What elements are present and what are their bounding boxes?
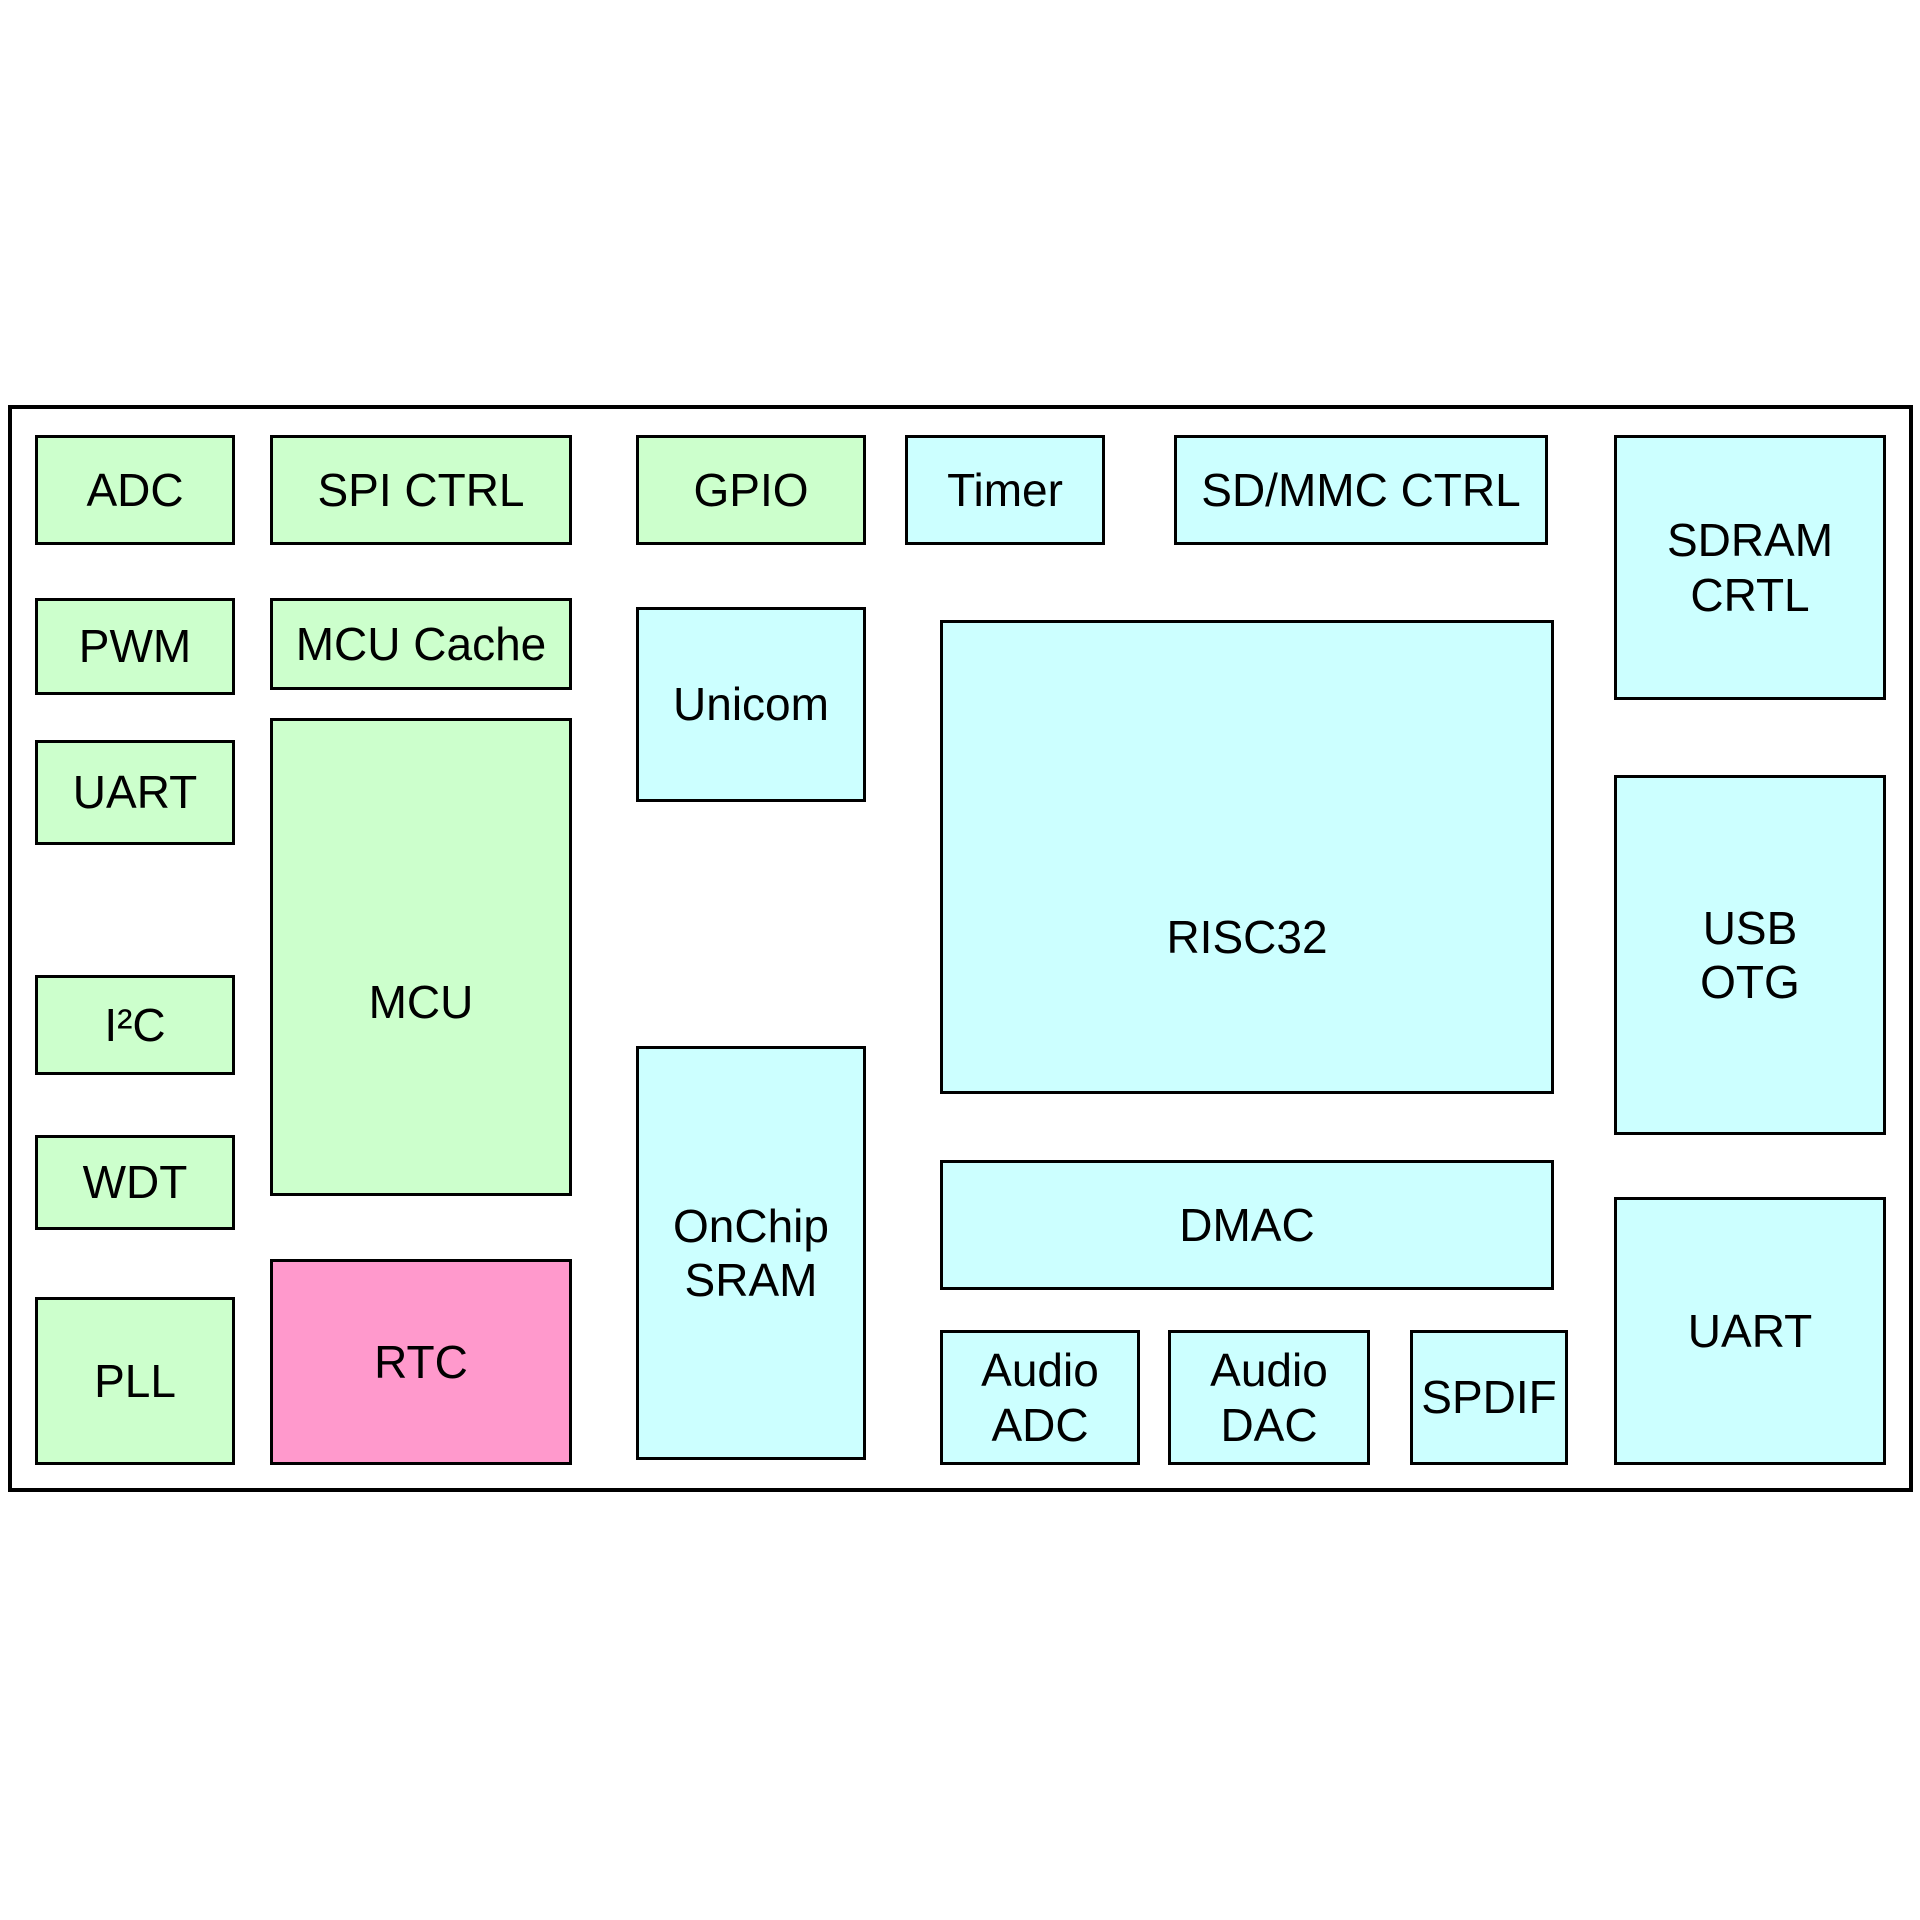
block-spdif: SPDIF <box>1410 1330 1568 1465</box>
block-label: GPIO <box>693 463 808 517</box>
block-pwm: PWM <box>35 598 235 695</box>
block-label: Unicom <box>673 677 829 731</box>
block-label: OnChip SRAM <box>673 1199 829 1308</box>
block-uart-right: UART <box>1614 1197 1886 1465</box>
block-timer: Timer <box>905 435 1105 545</box>
block-label: I²C <box>104 998 165 1052</box>
block-rtc: RTC <box>270 1259 572 1465</box>
block-label: SPDIF <box>1421 1370 1556 1424</box>
block-i2c: I²C <box>35 975 235 1075</box>
block-gpio: GPIO <box>636 435 866 545</box>
block-label: UART <box>73 765 197 819</box>
block-label: RISC32 <box>1166 910 1327 964</box>
block-label: Audio DAC <box>1210 1343 1328 1452</box>
block-label: WDT <box>83 1155 188 1209</box>
block-label: DMAC <box>1179 1198 1314 1252</box>
block-onchip-sram: OnChip SRAM <box>636 1046 866 1460</box>
block-risc32: RISC32 <box>940 620 1554 1094</box>
block-adc: ADC <box>35 435 235 545</box>
block-label: ADC <box>86 463 183 517</box>
block-unicom: Unicom <box>636 607 866 802</box>
block-mcu-cache: MCU Cache <box>270 598 572 690</box>
block-spi-ctrl: SPI CTRL <box>270 435 572 545</box>
block-pll: PLL <box>35 1297 235 1465</box>
block-label: SDRAM CRTL <box>1667 513 1833 622</box>
block-label: SD/MMC CTRL <box>1201 463 1520 517</box>
block-label: SPI CTRL <box>317 463 524 517</box>
block-dmac: DMAC <box>940 1160 1554 1290</box>
block-wdt: WDT <box>35 1135 235 1230</box>
soc-block-diagram: ADCSPI CTRLGPIOTimerSD/MMC CTRLSDRAM CRT… <box>0 0 1920 1920</box>
block-label: PLL <box>94 1354 176 1408</box>
block-uart-left: UART <box>35 740 235 845</box>
block-label: UART <box>1688 1304 1812 1358</box>
block-label: USB OTG <box>1700 901 1800 1010</box>
block-label: MCU Cache <box>296 617 547 671</box>
block-sd-mmc-ctrl: SD/MMC CTRL <box>1174 435 1548 545</box>
block-label: Timer <box>947 463 1063 517</box>
block-label: RTC <box>374 1335 468 1389</box>
block-label: PWM <box>79 619 191 673</box>
block-mcu: MCU <box>270 718 572 1196</box>
block-audio-adc: Audio ADC <box>940 1330 1140 1465</box>
block-label: MCU <box>369 975 474 1029</box>
block-audio-dac: Audio DAC <box>1168 1330 1370 1465</box>
block-sdram-crtl: SDRAM CRTL <box>1614 435 1886 700</box>
block-label: Audio ADC <box>981 1343 1099 1452</box>
block-usb-otg: USB OTG <box>1614 775 1886 1135</box>
